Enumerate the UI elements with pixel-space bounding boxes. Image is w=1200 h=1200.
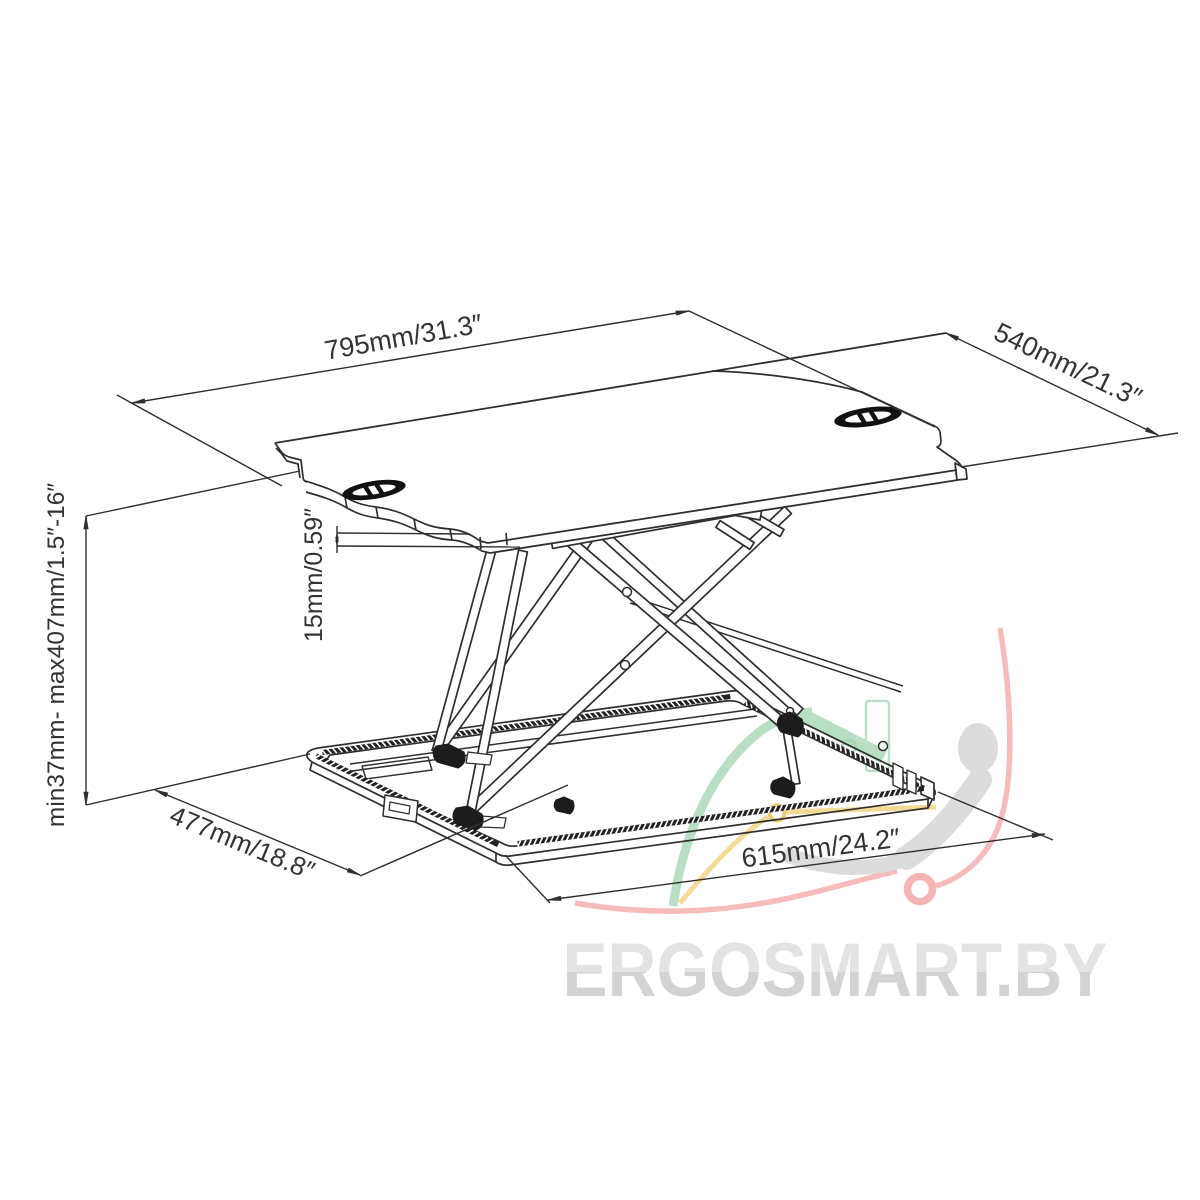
svg-text:min37mm- max407mm/1.5″-16″: min37mm- max407mm/1.5″-16″ [43,483,70,827]
svg-text:ERGOSMART.BY: ERGOSMART.BY [563,928,1108,1013]
svg-text:15mm/0.59″: 15mm/0.59″ [300,508,328,642]
